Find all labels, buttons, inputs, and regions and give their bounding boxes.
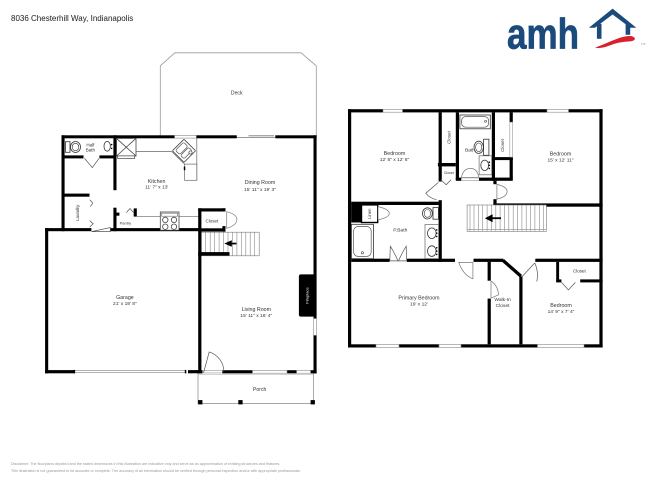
svg-text:Bedroom: Bedroom: [550, 303, 572, 309]
svg-text:Walk-In: Walk-In: [494, 297, 511, 303]
svg-text:This illustration is not guara: This illustration is not guaranteed to b…: [11, 469, 301, 473]
svg-text:15' x 12' 11": 15' x 12' 11": [547, 158, 573, 164]
svg-text:Disclaimer: The floorplans dep: Disclaimer: The floorplans depicted and …: [11, 462, 280, 466]
svg-text:11' 7" x 13': 11' 7" x 13': [145, 185, 168, 191]
svg-text:Primary Bedroom: Primary Bedroom: [398, 295, 440, 301]
svg-text:Fireplace: Fireplace: [304, 287, 309, 304]
svg-text:8036 Chesterhill Way, Indianap: 8036 Chesterhill Way, Indianapolis: [11, 14, 133, 23]
svg-text:Kitchen: Kitchen: [148, 179, 166, 185]
svg-text:Half: Half: [86, 142, 95, 147]
svg-text:P.Bath: P.Bath: [393, 228, 407, 234]
svg-text:Bath: Bath: [465, 148, 475, 154]
svg-text:Linen: Linen: [367, 208, 372, 219]
svg-text:15' 11" x 19' 3": 15' 11" x 19' 3": [244, 187, 276, 193]
svg-text:Deck: Deck: [231, 91, 243, 97]
svg-text:Closet: Closet: [446, 130, 451, 144]
svg-text:TM: TM: [641, 42, 646, 46]
svg-text:Closet: Closet: [500, 138, 505, 152]
svg-text:Closet: Closet: [496, 303, 511, 309]
svg-text:Dining Room: Dining Room: [245, 180, 276, 186]
svg-text:15' 11" x 16' 4": 15' 11" x 16' 4": [240, 313, 272, 319]
svg-text:Laundry: Laundry: [75, 204, 80, 221]
svg-text:Closet: Closet: [206, 218, 220, 223]
svg-text:Bath: Bath: [86, 148, 96, 153]
svg-text:amh: amh: [507, 11, 579, 59]
svg-text:Bedroom: Bedroom: [550, 152, 572, 158]
svg-text:Living Room: Living Room: [242, 307, 272, 313]
svg-text:Closet: Closet: [573, 269, 587, 274]
svg-text:Pantry: Pantry: [120, 221, 132, 226]
svg-text:Porch: Porch: [253, 387, 266, 393]
svg-text:19' x 12': 19' x 12': [410, 301, 428, 307]
svg-text:Bedroom: Bedroom: [384, 151, 406, 157]
svg-text:Closet: Closet: [444, 171, 454, 175]
svg-text:21' x 19' 8": 21' x 19' 8": [113, 301, 137, 307]
svg-text:Garage: Garage: [116, 295, 134, 301]
svg-text:14' 9" x 7' 4": 14' 9" x 7' 4": [548, 309, 575, 315]
svg-text:12' 5" x 12' 6": 12' 5" x 12' 6": [380, 157, 410, 163]
